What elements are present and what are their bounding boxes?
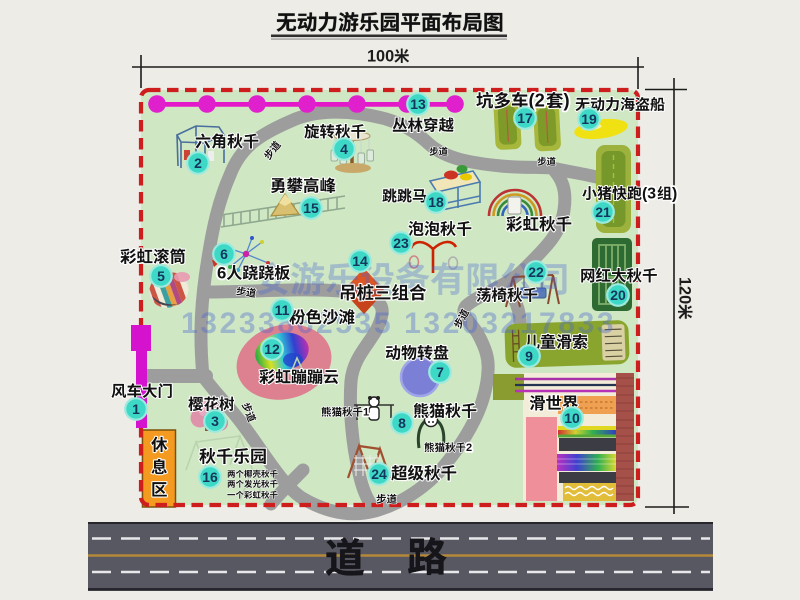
svg-text:5: 5: [157, 268, 165, 284]
svg-text:21: 21: [595, 204, 611, 220]
svg-text:(3: (3: [642, 185, 656, 202]
svg-text:22: 22: [528, 264, 544, 280]
svg-text:8: 8: [398, 415, 406, 431]
svg-text:2: 2: [194, 155, 202, 171]
svg-text:13: 13: [410, 96, 426, 112]
svg-text:15: 15: [303, 200, 319, 216]
svg-text:1: 1: [132, 401, 140, 417]
svg-text:18: 18: [428, 194, 444, 210]
svg-text:9: 9: [525, 348, 533, 364]
svg-text:2: 2: [466, 442, 472, 454]
svg-text:12: 12: [264, 341, 280, 357]
svg-text:10: 10: [564, 410, 580, 426]
svg-text:120: 120: [676, 277, 694, 304]
svg-text:20: 20: [610, 287, 626, 303]
svg-text:14: 14: [352, 253, 368, 269]
svg-text:3: 3: [211, 413, 219, 429]
svg-text:4: 4: [340, 141, 348, 157]
svg-text:): ): [564, 90, 570, 111]
svg-text:23: 23: [393, 235, 409, 251]
svg-text:17: 17: [517, 110, 533, 126]
svg-text:100: 100: [367, 47, 394, 65]
svg-text:19: 19: [581, 111, 597, 127]
svg-text:6: 6: [220, 246, 228, 262]
svg-text:16: 16: [202, 469, 218, 485]
svg-text:): ): [672, 185, 677, 202]
svg-text:11: 11: [275, 302, 290, 318]
svg-text:24: 24: [371, 466, 387, 482]
svg-text:7: 7: [436, 364, 444, 380]
svg-text:1: 1: [363, 407, 369, 419]
svg-text:(2: (2: [529, 90, 545, 111]
svg-text:6: 6: [217, 263, 226, 282]
